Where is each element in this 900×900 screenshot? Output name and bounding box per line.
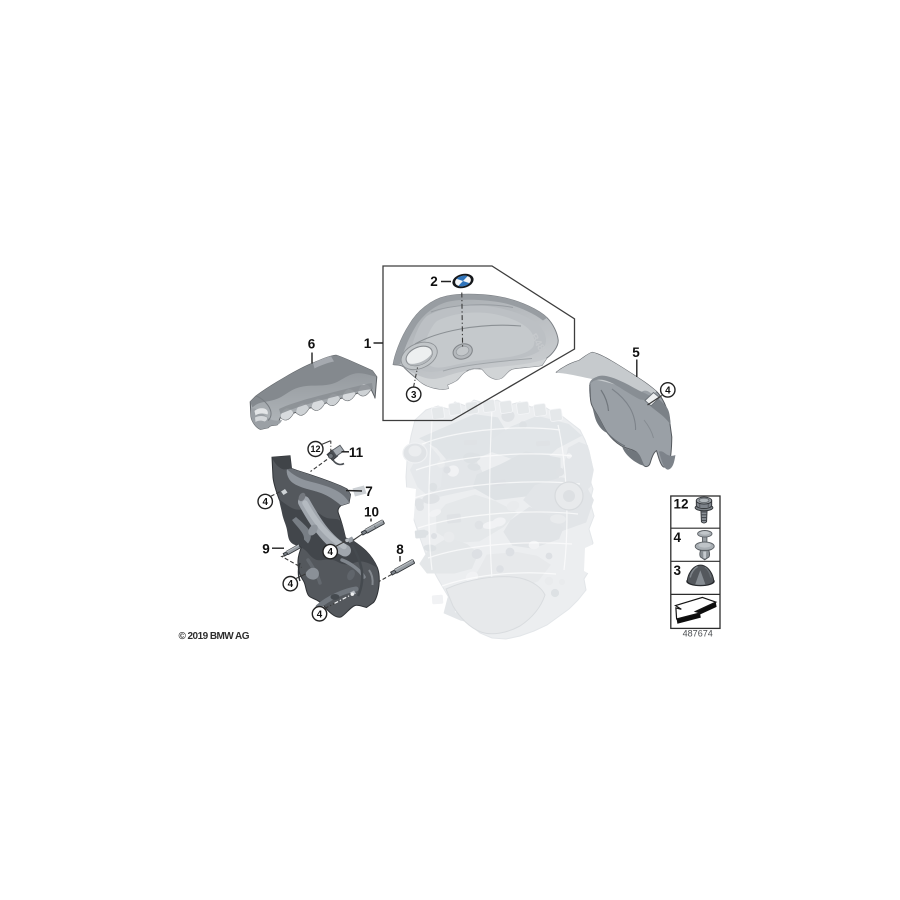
svg-text:2: 2	[430, 274, 438, 289]
svg-text:3: 3	[674, 563, 682, 578]
svg-text:4: 4	[665, 385, 671, 396]
svg-text:4: 4	[262, 497, 268, 508]
svg-text:12: 12	[310, 444, 320, 454]
svg-text:487674: 487674	[683, 628, 713, 638]
svg-text:11: 11	[349, 445, 364, 460]
svg-text:5: 5	[632, 345, 640, 360]
svg-text:4: 4	[674, 530, 682, 545]
svg-text:4: 4	[288, 579, 294, 590]
svg-text:1: 1	[364, 336, 372, 351]
svg-text:12: 12	[674, 496, 689, 511]
svg-text:9: 9	[262, 542, 270, 557]
svg-text:7: 7	[365, 484, 373, 499]
svg-text:6: 6	[308, 337, 316, 352]
svg-text:© 2019 BMW AG: © 2019 BMW AG	[179, 631, 250, 642]
svg-text:3: 3	[411, 390, 417, 401]
svg-text:4: 4	[327, 547, 333, 558]
svg-text:10: 10	[364, 505, 379, 520]
svg-text:8: 8	[396, 542, 404, 557]
svg-text:4: 4	[317, 609, 323, 620]
